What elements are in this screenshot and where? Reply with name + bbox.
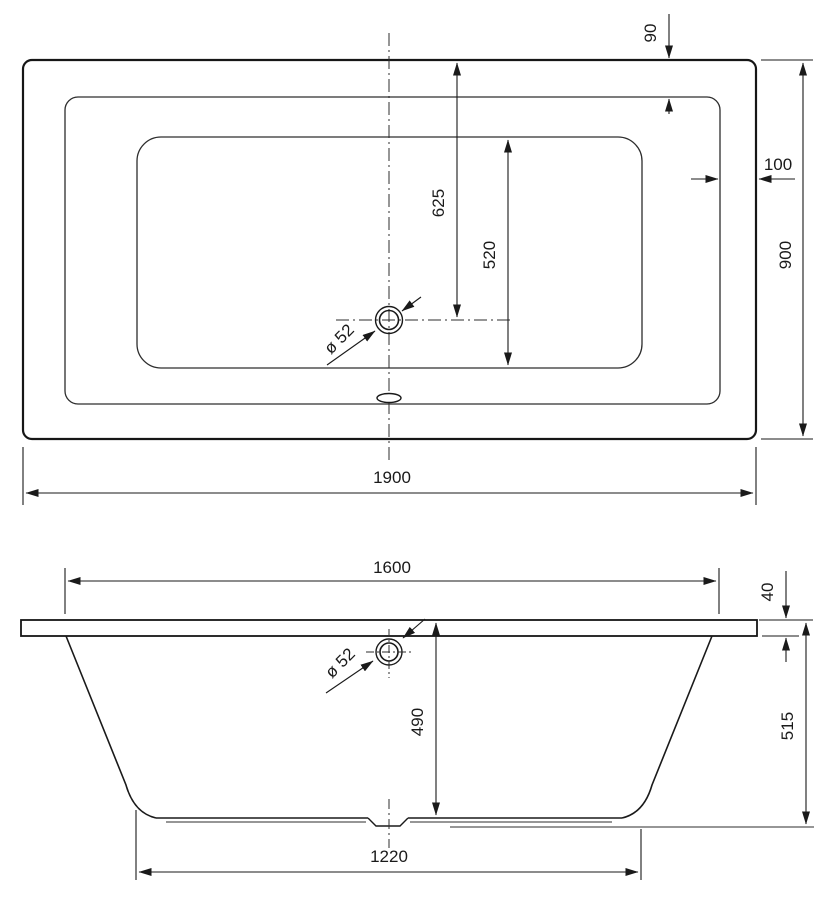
- dimension-label-625: 625: [429, 189, 448, 217]
- dimension-label-90: 90: [641, 24, 660, 43]
- rim-inner-edge-outline: [65, 97, 720, 404]
- dimension-label-40: 40: [758, 583, 777, 602]
- side-view: ø 52 1600 40 515 490 1220: [21, 558, 814, 880]
- bathtub-technical-drawing: 90 100 900 625 520 1900: [0, 0, 836, 900]
- dimension-label-100: 100: [764, 155, 792, 174]
- right-wall-outline: [622, 636, 712, 818]
- top-view: 90 100 900 625 520 1900: [23, 14, 813, 505]
- left-wall-outline: [66, 636, 156, 818]
- dimension-label-520: 520: [480, 241, 499, 269]
- drain-diameter-label: ø 52: [320, 320, 357, 357]
- drawing-svg: 90 100 900 625 520 1900: [0, 0, 836, 900]
- dimension-label-1900: 1900: [373, 468, 411, 487]
- dimension-label-900: 900: [776, 241, 795, 269]
- side-drain-diameter-label: ø 52: [321, 644, 358, 681]
- dimension-label-515: 515: [778, 712, 797, 740]
- overflow-slot: [377, 394, 401, 403]
- dimension-label-1220: 1220: [370, 847, 408, 866]
- dimension-label-490: 490: [408, 708, 427, 736]
- dimension-label-1600: 1600: [373, 558, 411, 577]
